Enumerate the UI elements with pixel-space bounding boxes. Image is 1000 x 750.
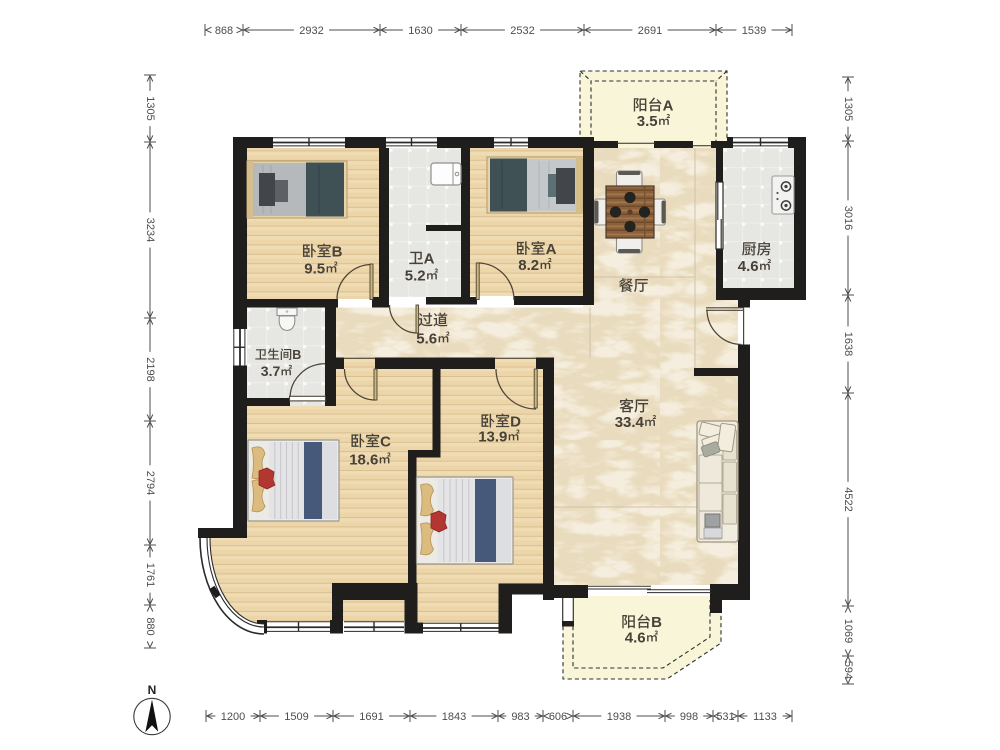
svg-text:1761: 1761: [144, 563, 156, 587]
svg-text:983: 983: [511, 711, 529, 723]
svg-text:5.6: 5.6: [416, 330, 437, 347]
svg-text:2794: 2794: [144, 471, 156, 495]
svg-text:594: 594: [842, 661, 854, 679]
svg-text:2532: 2532: [510, 25, 534, 37]
svg-text:1691: 1691: [359, 711, 383, 723]
svg-text:1069: 1069: [842, 619, 854, 643]
svg-text:8.2: 8.2: [518, 257, 539, 274]
svg-text:B: B: [651, 614, 662, 631]
svg-text:B: B: [332, 243, 343, 260]
svg-text:9.5: 9.5: [304, 260, 325, 277]
svg-text:18.6: 18.6: [349, 451, 378, 468]
svg-text:13.9: 13.9: [478, 428, 507, 445]
svg-text:1305: 1305: [144, 96, 156, 120]
svg-text:1843: 1843: [442, 711, 466, 723]
svg-text:D: D: [510, 413, 521, 430]
svg-text:5.2: 5.2: [405, 267, 426, 284]
svg-text:531: 531: [716, 711, 734, 723]
svg-text:1630: 1630: [408, 25, 432, 37]
svg-text:1539: 1539: [742, 25, 766, 37]
svg-text:B: B: [292, 348, 301, 362]
svg-text:3016: 3016: [842, 206, 854, 230]
svg-text:A: A: [663, 97, 674, 114]
svg-text:4522: 4522: [842, 487, 854, 511]
svg-text:33.4: 33.4: [615, 414, 645, 431]
svg-text:998: 998: [680, 711, 698, 723]
svg-text:A: A: [546, 241, 557, 258]
svg-text:2932: 2932: [299, 25, 323, 37]
svg-text:1133: 1133: [753, 711, 777, 723]
svg-text:3.7: 3.7: [261, 363, 281, 379]
svg-text:1638: 1638: [842, 332, 854, 356]
svg-text:1938: 1938: [607, 711, 631, 723]
svg-text:3.5: 3.5: [637, 113, 658, 130]
svg-text:2691: 2691: [638, 25, 662, 37]
svg-text:606: 606: [549, 711, 567, 723]
svg-text:N: N: [148, 683, 157, 697]
svg-text:868: 868: [215, 25, 233, 37]
svg-text:4.6: 4.6: [738, 258, 759, 275]
svg-text:3234: 3234: [144, 218, 156, 242]
svg-text:A: A: [424, 250, 435, 267]
svg-text:4.6: 4.6: [625, 629, 646, 646]
svg-text:880: 880: [144, 617, 156, 635]
svg-text:C: C: [380, 433, 391, 450]
svg-text:2198: 2198: [144, 357, 156, 381]
svg-text:1305: 1305: [842, 97, 854, 121]
svg-text:1200: 1200: [221, 711, 245, 723]
svg-text:1509: 1509: [284, 711, 308, 723]
